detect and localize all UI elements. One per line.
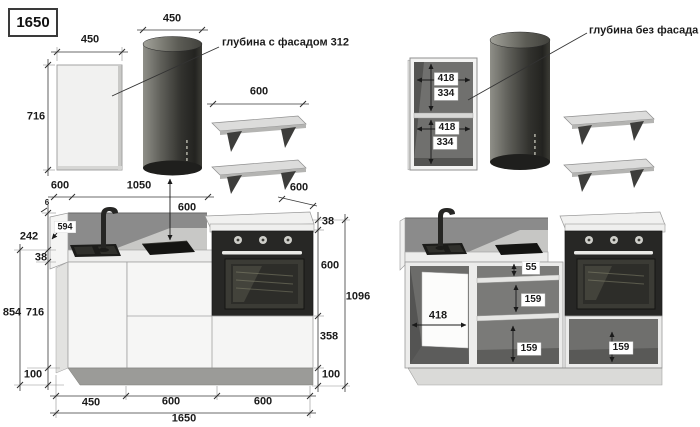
cooktop <box>495 243 543 255</box>
dim-sink-panel-width: 418 <box>429 311 447 322</box>
dim-reveal: 6 <box>45 199 49 207</box>
oven-handle <box>574 251 653 255</box>
dim-top-gap: 55 <box>522 262 539 274</box>
total-width-badge: 1650 <box>8 8 58 37</box>
drawing-canvas <box>0 0 700 427</box>
dim-bottom-cabinet1: 450 <box>82 398 100 409</box>
dim-cabinet-height: 716 <box>26 308 44 319</box>
sink <box>70 244 121 257</box>
dim-bottom-cabinet3: 600 <box>254 397 272 408</box>
dim-panel-height: 716 <box>27 112 45 123</box>
dim-wc-bottom-height: 334 <box>434 137 457 149</box>
dim-counter-depth: 600 <box>51 181 69 192</box>
note-depth-without-facade: глубина без фасада 296 <box>589 26 700 37</box>
note-depth-with-facade: глубина с фасадом 312 <box>222 38 349 49</box>
dim-plinth-right: 100 <box>322 370 340 381</box>
dim-wc-top-width: 418 <box>435 73 458 85</box>
oven-window <box>225 259 304 309</box>
plinth <box>408 368 662 385</box>
oven-tower <box>205 212 314 368</box>
dim-backsplash-height: 242 <box>20 232 38 243</box>
left-hood-cylinder <box>143 37 202 176</box>
dim-inner-width: 594 <box>54 222 75 233</box>
dim-counter-thickness-left: 38 <box>35 253 47 264</box>
dim-hood-to-hob: 600 <box>178 203 196 214</box>
right-wall-shelves <box>564 111 654 192</box>
dim-plinth-left: 100 <box>24 370 42 381</box>
dim-hood-width: 450 <box>163 14 181 25</box>
dim-depth-diagonal: 600 <box>290 183 308 194</box>
dim-shelf-width: 600 <box>250 87 268 98</box>
dim-wc-bottom-width: 418 <box>436 122 459 134</box>
dim-oven-height: 600 <box>321 261 339 272</box>
left-wall-panel <box>57 65 122 170</box>
dim-counter-thickness-right: 38 <box>322 217 334 228</box>
dim-wc-top-height: 334 <box>435 88 458 100</box>
plinth <box>68 368 313 385</box>
dim-shelf-gap-lower: 159 <box>518 343 541 355</box>
dim-total-height: 1096 <box>346 292 370 303</box>
oven-handle <box>222 251 302 255</box>
oven-window <box>577 259 655 309</box>
left-elevation <box>50 207 314 385</box>
right-hood-cylinder <box>490 32 550 170</box>
dim-bottom-total: 1650 <box>172 414 196 425</box>
dim-oven-compartment: 159 <box>610 342 633 354</box>
dim-panel-width: 450 <box>81 35 99 46</box>
dim-base-height: 854 <box>3 308 21 319</box>
kitchen-technical-drawing: 1650 450 716 450 глубина с фасадом 312 6… <box>0 0 700 427</box>
dim-hood-axis: 1050 <box>127 181 151 192</box>
dim-drawer-height: 358 <box>320 332 338 343</box>
dim-shelf-gap-upper: 159 <box>522 294 545 306</box>
dim-bottom-cabinet2: 600 <box>162 397 180 408</box>
